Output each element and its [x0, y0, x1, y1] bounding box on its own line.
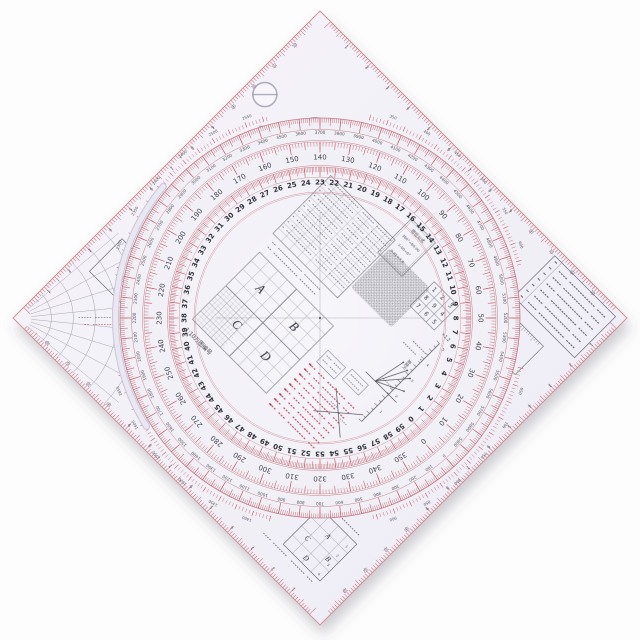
- svg-text:2200: 2200: [132, 312, 137, 323]
- ruler-photo: 1234567891011121312345678910111213123456…: [0, 0, 640, 640]
- svg-text:9: 9: [451, 301, 459, 307]
- svg-text:50: 50: [477, 314, 485, 323]
- svg-text:39: 39: [181, 327, 190, 338]
- svg-text:8: 8: [452, 316, 460, 321]
- svg-text:60: 60: [473, 285, 482, 295]
- svg-text:230: 230: [156, 311, 164, 324]
- ruler-photo-canvas: 1234567891011121312345678910111213123456…: [0, 0, 640, 640]
- svg-text:140: 140: [313, 154, 326, 162]
- svg-text:38: 38: [181, 313, 189, 323]
- svg-text:24: 24: [301, 179, 312, 188]
- svg-text:700: 700: [316, 501, 324, 506]
- svg-text:53: 53: [315, 450, 325, 458]
- svg-text:54: 54: [329, 448, 340, 457]
- svg-text:600: 600: [335, 500, 344, 506]
- svg-text:52: 52: [300, 448, 311, 457]
- svg-text:5200: 5200: [503, 313, 508, 324]
- svg-text:22: 22: [329, 179, 340, 188]
- svg-text:23: 23: [315, 179, 325, 187]
- svg-text:800: 800: [296, 500, 305, 506]
- svg-text:3700: 3700: [315, 130, 326, 135]
- svg-text:7: 7: [451, 329, 459, 335]
- svg-text:37: 37: [181, 298, 190, 309]
- svg-text:320: 320: [313, 475, 326, 483]
- svg-text:40: 40: [473, 341, 482, 351]
